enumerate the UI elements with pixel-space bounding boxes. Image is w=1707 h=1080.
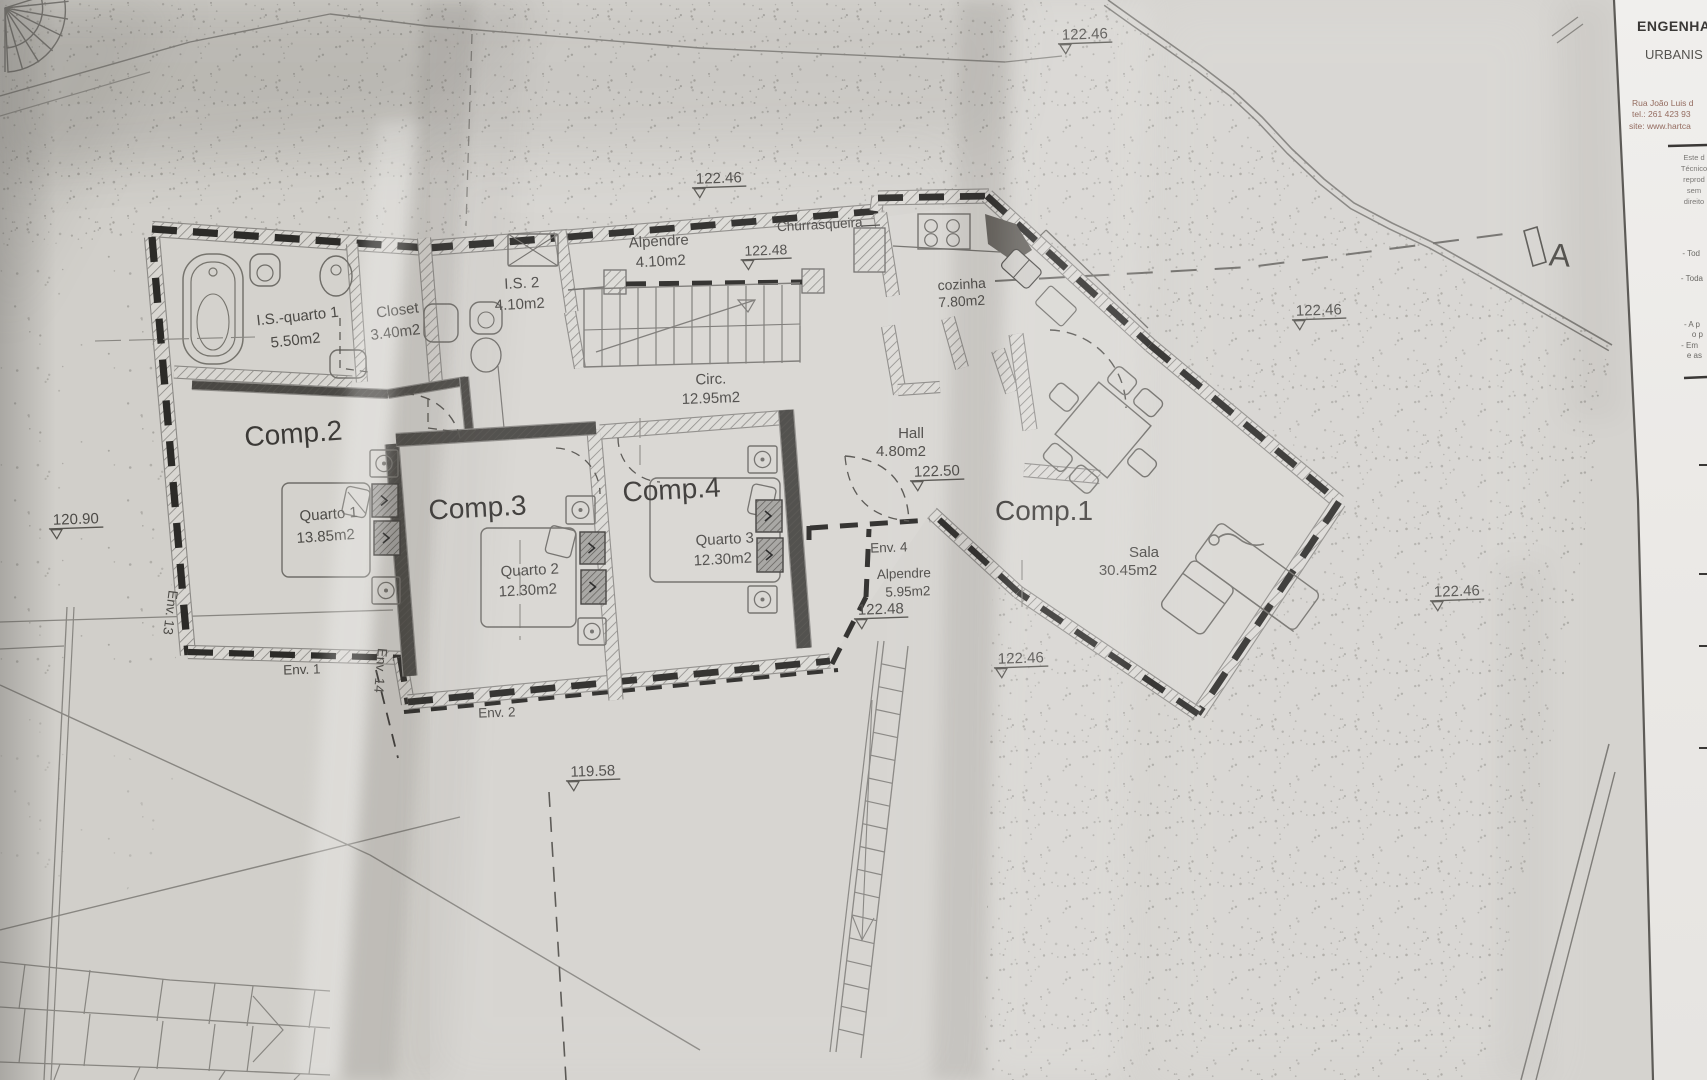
svg-text:reprod: reprod bbox=[1683, 175, 1705, 184]
svg-text:- A p: - A p bbox=[1684, 320, 1701, 329]
svg-text:tel.: 261 423 93: tel.: 261 423 93 bbox=[1632, 109, 1691, 119]
svg-text:e as: e as bbox=[1687, 351, 1702, 360]
svg-text:site: www.hartca: site: www.hartca bbox=[1629, 121, 1691, 131]
svg-text:o p: o p bbox=[1692, 330, 1704, 339]
svg-text:sem: sem bbox=[1687, 186, 1701, 195]
svg-text:- Em: - Em bbox=[1681, 341, 1698, 350]
svg-text:URBANIS: URBANIS bbox=[1645, 47, 1703, 62]
svg-text:- Tod: - Tod bbox=[1682, 249, 1700, 258]
svg-text:Rua João Luis d: Rua João Luis d bbox=[1632, 98, 1694, 108]
svg-text:Este d: Este d bbox=[1683, 153, 1704, 162]
svg-text:- Toda: - Toda bbox=[1681, 274, 1704, 283]
svg-text:ENGENHA: ENGENHA bbox=[1637, 18, 1707, 34]
svg-text:Técnico: Técnico bbox=[1681, 164, 1707, 173]
svg-text:direito: direito bbox=[1684, 197, 1704, 206]
